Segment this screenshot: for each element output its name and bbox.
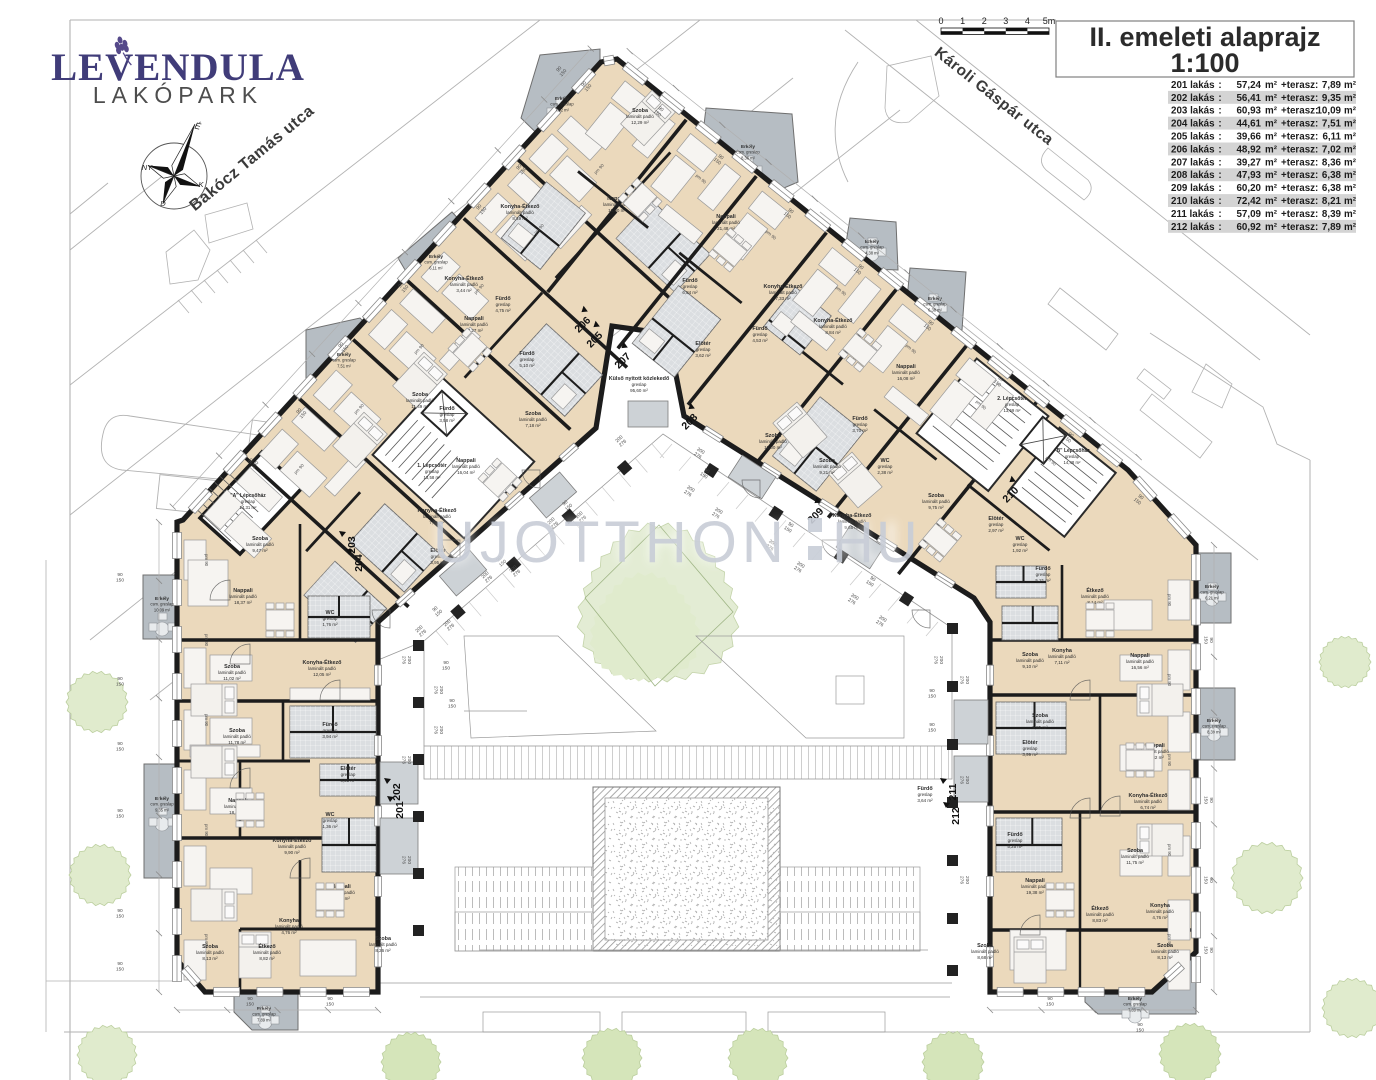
svg-text::: :: [1218, 106, 1221, 117]
svg-text:1: 1: [960, 16, 965, 26]
svg-text:47,93: 47,93: [1236, 170, 1261, 181]
svg-text:208 lakás: 208 lakás: [1171, 170, 1215, 181]
svg-text:LAKÓPARK: LAKÓPARK: [93, 82, 263, 108]
svg-text:13,58 m²: 13,58 m²: [424, 475, 442, 480]
svg-text:212 lakás: 212 lakás: [1171, 222, 1215, 233]
svg-text:m²: m²: [1344, 93, 1357, 104]
svg-text:pm 90: pm 90: [1167, 754, 1172, 767]
svg-text:5,10 m²: 5,10 m²: [519, 363, 535, 368]
svg-text:60,20: 60,20: [1236, 183, 1261, 194]
svg-text:m²: m²: [1344, 144, 1357, 155]
svg-text:+terasz:: +terasz:: [1281, 132, 1318, 143]
svg-text:12,05 m²: 12,05 m²: [313, 672, 331, 677]
svg-text:Fürdő: Fürdő: [917, 786, 933, 792]
svg-text:greslap: greslap: [1065, 454, 1080, 459]
svg-text:pm 90: pm 90: [204, 714, 209, 727]
svg-text:Nappali: Nappali: [716, 214, 736, 220]
svg-text:Konyha: Konyha: [1052, 648, 1073, 654]
svg-text:3,99 m²: 3,99 m²: [1022, 752, 1038, 757]
svg-text:csm. greslap: csm. greslap: [332, 358, 356, 363]
svg-text:150: 150: [246, 1002, 254, 1008]
svg-text:201 lakás: 201 lakás: [1171, 80, 1215, 91]
svg-text:m²: m²: [1344, 196, 1357, 207]
svg-text:150: 150: [116, 747, 124, 753]
svg-text:11,49 m²: 11,49 m²: [411, 404, 429, 409]
svg-text:7,18 m²: 7,18 m²: [525, 423, 541, 428]
svg-text:pm 90: pm 90: [1167, 934, 1172, 947]
svg-text:laminált padló: laminált padló: [229, 594, 257, 599]
svg-text:7,33 m²: 7,33 m²: [775, 296, 791, 301]
svg-text:Külső nyitott közlekedő: Külső nyitott közlekedő: [609, 376, 670, 382]
svg-text:m²: m²: [1344, 119, 1357, 130]
svg-text:m²: m²: [1265, 170, 1278, 181]
svg-text:Elötér: Elötér: [695, 341, 711, 347]
svg-text::: :: [1218, 132, 1221, 143]
svg-text:m²: m²: [1265, 106, 1278, 117]
svg-text:57,24: 57,24: [1236, 80, 1261, 91]
svg-text:greslap: greslap: [918, 792, 933, 797]
svg-text:greslap: greslap: [323, 728, 338, 733]
svg-text:150: 150: [1136, 1028, 1144, 1034]
svg-text:150: 150: [116, 914, 124, 920]
svg-text:pm 90: pm 90: [1167, 674, 1172, 687]
svg-text:laminált padló: laminált padló: [1021, 884, 1049, 889]
svg-text:200: 200: [964, 676, 970, 684]
svg-text:276: 276: [432, 686, 438, 694]
svg-text:16,04 m²: 16,04 m²: [457, 470, 475, 475]
svg-text:Konyha-Étkező: Konyha-Étkező: [501, 202, 541, 210]
svg-text:Nappali: Nappali: [233, 588, 253, 594]
svg-text:14,31 m²: 14,31 m²: [240, 505, 258, 510]
svg-text:39,66: 39,66: [1236, 132, 1261, 143]
svg-text:56,41: 56,41: [1236, 93, 1261, 104]
svg-text:Erkély: Erkély: [741, 144, 755, 149]
svg-text:Konyha-Étkező: Konyha-Étkező: [273, 836, 313, 844]
svg-text:200: 200: [406, 656, 412, 664]
svg-text:WC: WC: [326, 812, 335, 818]
svg-text:m²: m²: [1265, 93, 1278, 104]
svg-text:m²: m²: [1344, 106, 1357, 117]
svg-text:greslap: greslap: [496, 302, 511, 307]
svg-text:4,53 m²: 4,53 m²: [752, 338, 768, 343]
svg-text:6,51 m²: 6,51 m²: [340, 778, 356, 783]
svg-text:csm. greslap: csm. greslap: [150, 802, 174, 807]
svg-text:Szoba: Szoba: [1127, 848, 1144, 854]
svg-text:Szoba: Szoba: [224, 664, 241, 670]
svg-text:8,68 m²: 8,68 m²: [977, 955, 993, 960]
svg-text:laminált padló: laminált padló: [1026, 719, 1054, 724]
svg-text:greslap: greslap: [878, 464, 893, 469]
svg-text:6,38: 6,38: [1322, 170, 1342, 181]
svg-text:12,29 m²: 12,29 m²: [631, 120, 649, 125]
svg-text:150: 150: [116, 578, 124, 584]
svg-text:212: 212: [950, 807, 962, 825]
svg-text:laminált padló: laminált padló: [971, 949, 999, 954]
svg-text:8,49 m²: 8,49 m²: [512, 216, 528, 221]
svg-text:laminált padló: laminált padló: [1134, 799, 1162, 804]
svg-text:laminált padló: laminált padló: [712, 220, 740, 225]
svg-text:3,58 m²: 3,58 m²: [439, 418, 455, 423]
svg-text:+terasz:: +terasz:: [1281, 106, 1318, 117]
svg-text:1,36 m²: 1,36 m²: [322, 824, 338, 829]
svg-text:8,84 m²: 8,84 m²: [825, 330, 841, 335]
svg-text:16,08 m²: 16,08 m²: [897, 376, 915, 381]
svg-text:150: 150: [928, 728, 936, 734]
svg-text:+terasz:: +terasz:: [1281, 170, 1318, 181]
svg-text:Fürdő: Fürdő: [1007, 832, 1023, 838]
svg-text:9,85 m²: 9,85 m²: [1032, 725, 1048, 730]
svg-text:m²: m²: [1265, 157, 1278, 168]
svg-text::: :: [1218, 93, 1221, 104]
svg-text:D: D: [160, 199, 166, 208]
svg-text:200: 200: [406, 756, 412, 764]
svg-text:greslap: greslap: [440, 412, 455, 417]
svg-text:276: 276: [958, 776, 964, 784]
svg-text:90: 90: [327, 996, 333, 1002]
svg-text:9,35 m²: 9,35 m²: [155, 807, 170, 812]
svg-text:laminált padló: laminált padló: [759, 439, 787, 444]
svg-text:7,89: 7,89: [1322, 80, 1342, 91]
svg-text:laminált padló: laminált padló: [223, 734, 251, 739]
svg-text:Konyha-Étkező: Konyha-Étkező: [1129, 791, 1169, 799]
svg-text:m²: m²: [1265, 144, 1278, 155]
svg-text:Elötér: Elötér: [340, 766, 356, 772]
svg-text::: :: [1218, 170, 1221, 181]
svg-text:Elötér: Elötér: [988, 516, 1004, 522]
svg-text:7,89 m²: 7,89 m²: [257, 1017, 272, 1022]
svg-text:Erkély: Erkély: [1128, 996, 1142, 1001]
svg-text:+terasz:: +terasz:: [1281, 157, 1318, 168]
svg-text:greslap: greslap: [1013, 542, 1028, 547]
svg-text:6,38 m²: 6,38 m²: [928, 307, 943, 312]
svg-text:m²: m²: [1344, 132, 1357, 143]
svg-text:laminált padló: laminált padló: [506, 210, 534, 215]
svg-text:greslap: greslap: [323, 616, 338, 621]
svg-text:+terasz:: +terasz:: [1281, 144, 1318, 155]
svg-text:Konyha-Étkező: Konyha-Étkező: [303, 658, 343, 666]
svg-text:m²: m²: [1265, 222, 1278, 233]
svg-text:276: 276: [400, 856, 406, 864]
svg-text:laminált padló: laminált padló: [813, 464, 841, 469]
svg-text:57,09: 57,09: [1236, 209, 1261, 220]
svg-text:laminált padló: laminált padló: [450, 282, 478, 287]
svg-text:laminált padló: laminált padló: [452, 464, 480, 469]
svg-text:60,92: 60,92: [1236, 222, 1261, 233]
svg-text:Fürdő: Fürdő: [322, 722, 338, 728]
svg-text:4,75 m²: 4,75 m²: [495, 308, 511, 313]
svg-text:m²: m²: [1265, 80, 1278, 91]
svg-text::: :: [1218, 80, 1221, 91]
svg-text:2,97 m²: 2,97 m²: [988, 528, 1004, 533]
svg-text:8,26 m²: 8,26 m²: [375, 948, 391, 953]
svg-text:Konyha-Étkező: Konyha-Étkező: [445, 274, 485, 282]
svg-text:greslap: greslap: [1036, 572, 1051, 577]
svg-text:+terasz:: +terasz:: [1281, 80, 1318, 91]
svg-text:greslap: greslap: [696, 347, 711, 352]
svg-text:11,02 m²: 11,02 m²: [223, 676, 241, 681]
svg-text:11,78 m²: 11,78 m²: [228, 740, 246, 745]
svg-text:210 lakás: 210 lakás: [1171, 196, 1215, 207]
svg-text:Fürdő: Fürdő: [495, 296, 511, 302]
svg-text:205 lakás: 205 lakás: [1171, 132, 1215, 143]
svg-text:laminált padló: laminált padló: [1016, 658, 1044, 663]
svg-text:90: 90: [117, 961, 123, 967]
svg-text:200: 200: [438, 686, 444, 694]
svg-text:90: 90: [449, 698, 455, 704]
svg-text:207 lakás: 207 lakás: [1171, 157, 1215, 168]
svg-text:+terasz:: +terasz:: [1281, 222, 1318, 233]
svg-text:Étkező: Étkező: [1091, 904, 1109, 912]
svg-text:m²: m²: [1265, 196, 1278, 207]
svg-text:211: 211: [947, 783, 959, 800]
svg-text:Nappali: Nappali: [896, 364, 916, 370]
svg-text:greslap: greslap: [241, 499, 256, 504]
svg-text:90: 90: [1208, 637, 1214, 643]
svg-text:Étkező: Étkező: [1086, 586, 1104, 594]
svg-text:Fürdő: Fürdő: [1035, 566, 1051, 572]
svg-text:pm 90: pm 90: [204, 634, 209, 647]
svg-text:Szoba: Szoba: [525, 411, 542, 417]
svg-text:m²: m²: [1265, 209, 1278, 220]
svg-text:150: 150: [326, 1002, 334, 1008]
svg-text:laminált padló: laminált padló: [1146, 909, 1174, 914]
svg-text:200: 200: [406, 856, 412, 864]
svg-text:9,90 m²: 9,90 m²: [284, 850, 300, 855]
svg-text:m²: m²: [1344, 157, 1357, 168]
svg-text:11,75 m²: 11,75 m²: [1126, 860, 1144, 865]
svg-text:276: 276: [958, 876, 964, 884]
svg-text:150: 150: [116, 682, 124, 688]
svg-text:18,37 m²: 18,37 m²: [234, 600, 252, 605]
svg-text:90: 90: [1208, 947, 1214, 953]
svg-text:laminált padló: laminált padló: [308, 666, 336, 671]
svg-text:1,76 m²: 1,76 m²: [322, 622, 338, 627]
svg-text:3,94 m²: 3,94 m²: [322, 734, 338, 739]
svg-text:6,38: 6,38: [1322, 183, 1342, 194]
svg-text:8,83 m²: 8,83 m²: [1092, 918, 1108, 923]
svg-text:laminált padló: laminált padló: [626, 114, 654, 119]
svg-text:3,44 m²: 3,44 m²: [456, 288, 472, 293]
svg-text:+terasz:: +terasz:: [1281, 119, 1318, 130]
svg-text:Konyha: Konyha: [279, 918, 300, 924]
svg-text:NY: NY: [142, 163, 153, 172]
svg-text:Szoba: Szoba: [632, 108, 649, 114]
svg-text:laminált padló: laminált padló: [369, 942, 397, 947]
svg-text:Konyha: Konyha: [1150, 903, 1171, 909]
svg-text:211 lakás: 211 lakás: [1171, 209, 1215, 220]
svg-text:16,90 m²: 16,90 m²: [608, 208, 626, 213]
svg-text:csm. greslap: csm. greslap: [1202, 724, 1226, 729]
svg-text:greslap: greslap: [853, 422, 868, 427]
svg-text:90: 90: [929, 722, 935, 728]
svg-text:Fürdő: Fürdő: [682, 278, 698, 284]
svg-text:pm 90: pm 90: [204, 554, 209, 567]
svg-text:laminált padló: laminált padló: [819, 324, 847, 329]
svg-text:laminált padló: laminált padló: [519, 417, 547, 422]
svg-text:Szoba: Szoba: [765, 433, 782, 439]
svg-text:laminált padló: laminált padló: [253, 950, 281, 955]
svg-text:9,21 m²: 9,21 m²: [819, 470, 835, 475]
svg-text:laminált padló: laminált padló: [275, 924, 303, 929]
svg-text:Erkély: Erkély: [555, 96, 569, 101]
svg-text:204: 204: [353, 554, 365, 572]
svg-text:pm 90: pm 90: [204, 824, 209, 837]
svg-text:10,09 m²: 10,09 m²: [154, 607, 171, 612]
svg-text:72,42: 72,42: [1236, 196, 1261, 207]
svg-text:150: 150: [116, 814, 124, 820]
svg-text:laminált padló: laminált padló: [892, 370, 920, 375]
svg-text:202 lakás: 202 lakás: [1171, 93, 1215, 104]
svg-text:+terasz:: +terasz:: [1281, 196, 1318, 207]
svg-text:90: 90: [1137, 1022, 1143, 1028]
svg-text:7,51 m²: 7,51 m²: [337, 363, 352, 368]
svg-text:greslap: greslap: [1023, 746, 1038, 751]
svg-text:3,70 m²: 3,70 m²: [852, 428, 868, 433]
svg-text:csm. greslap: csm. greslap: [252, 1012, 276, 1017]
svg-text:greslap: greslap: [520, 357, 535, 362]
svg-text:m²: m²: [1344, 209, 1357, 220]
svg-text:laminált padló: laminált padló: [1121, 854, 1149, 859]
svg-text:WC: WC: [1016, 536, 1025, 542]
svg-text:90: 90: [117, 572, 123, 578]
svg-text:4,38 m²: 4,38 m²: [865, 250, 880, 255]
svg-text:7,51: 7,51: [1322, 119, 1342, 130]
svg-text:Nappali: Nappali: [456, 458, 476, 464]
svg-text:Fürdő: Fürdő: [519, 351, 535, 357]
svg-text:pm 90: pm 90: [204, 934, 209, 947]
svg-text:10,09: 10,09: [1316, 106, 1341, 117]
svg-text:greslap: greslap: [1008, 838, 1023, 843]
svg-text:150: 150: [1046, 1002, 1054, 1008]
svg-text:6,74 m²: 6,74 m²: [1140, 805, 1156, 810]
svg-text:276: 276: [432, 726, 438, 734]
svg-text:2,38 m²: 2,38 m²: [877, 470, 893, 475]
svg-text:Szoba: Szoba: [977, 943, 994, 949]
svg-text:Szoba: Szoba: [1032, 713, 1049, 719]
svg-text::: :: [1218, 157, 1221, 168]
svg-text:4,76 m²: 4,76 m²: [1152, 915, 1168, 920]
svg-text:3: 3: [1003, 16, 1008, 26]
svg-text:6,84 m²: 6,84 m²: [682, 290, 698, 295]
svg-text:8,82 m²: 8,82 m²: [259, 956, 275, 961]
svg-text:276: 276: [958, 676, 964, 684]
svg-text:Szoba: Szoba: [252, 536, 269, 542]
svg-text:Fürdő: Fürdő: [752, 326, 768, 332]
svg-text:44,61: 44,61: [1236, 119, 1261, 130]
svg-text:4: 4: [1025, 16, 1030, 26]
svg-text:Szoba: Szoba: [229, 728, 246, 734]
svg-text:Elötér: Elötér: [1022, 740, 1038, 746]
svg-text:16,56 m²: 16,56 m²: [1131, 665, 1149, 670]
svg-text:Szoba: Szoba: [375, 936, 392, 942]
svg-text:m²: m²: [1265, 119, 1278, 130]
svg-text:276: 276: [400, 656, 406, 664]
svg-text::: :: [1218, 222, 1221, 233]
svg-text:150: 150: [448, 704, 456, 710]
svg-text:150: 150: [1202, 796, 1208, 804]
svg-text:150: 150: [1202, 946, 1208, 954]
svg-text:3,62 m²: 3,62 m²: [695, 353, 711, 358]
svg-text:150: 150: [116, 967, 124, 973]
svg-text:9,10 m²: 9,10 m²: [1022, 664, 1038, 669]
svg-text:10,00 m²: 10,00 m²: [764, 445, 782, 450]
svg-text:90: 90: [1047, 996, 1053, 1002]
svg-text:pm 90: pm 90: [1167, 594, 1172, 607]
svg-text:m²: m²: [1265, 183, 1278, 194]
svg-text:203 lakás: 203 lakás: [1171, 106, 1215, 117]
svg-text::: :: [1218, 119, 1221, 130]
svg-text:laminált padló: laminált padló: [769, 290, 797, 295]
svg-text:Étkező: Étkező: [258, 942, 276, 950]
svg-text:m²: m²: [1265, 132, 1278, 143]
svg-text:greslap: greslap: [753, 332, 768, 337]
svg-text:0: 0: [938, 16, 943, 26]
svg-text:m²: m²: [1344, 170, 1357, 181]
svg-text:laminált padló: laminált padló: [218, 670, 246, 675]
svg-text:14,48 m²: 14,48 m²: [1064, 460, 1082, 465]
svg-text:UJOTTHON: UJOTTHON: [433, 510, 789, 575]
svg-text:4,76 m²: 4,76 m²: [281, 930, 297, 935]
svg-text:laminált padló: laminált padló: [1126, 659, 1154, 664]
svg-text:laminált padló: laminált padló: [1081, 594, 1109, 599]
svg-text:HU: HU: [832, 510, 920, 575]
svg-text:csm. greslap: csm. greslap: [1200, 590, 1224, 595]
svg-text:Konyha-Étkező: Konyha-Étkező: [814, 316, 854, 324]
svg-text:csm. greslap: csm. greslap: [1123, 1002, 1147, 1007]
svg-text:200: 200: [438, 726, 444, 734]
svg-text:150: 150: [928, 694, 936, 700]
svg-text::: :: [1218, 196, 1221, 207]
svg-text:Szoba: Szoba: [928, 493, 945, 499]
svg-text:csm. greslap: csm. greslap: [550, 102, 574, 107]
svg-text:laminált padló: laminált padló: [1086, 912, 1114, 917]
svg-text:greslap: greslap: [989, 522, 1004, 527]
svg-text:1:100: 1:100: [1170, 48, 1239, 78]
svg-text:90: 90: [247, 996, 253, 1002]
svg-text:Fürdő: Fürdő: [852, 416, 868, 422]
svg-text:90: 90: [929, 688, 935, 694]
svg-text:5,21 m²: 5,21 m²: [1035, 578, 1051, 583]
svg-text:Erkély: Erkély: [155, 596, 169, 601]
svg-text:6,11 m²: 6,11 m²: [429, 265, 443, 270]
svg-text:Konyha-Étkező: Konyha-Étkező: [764, 282, 804, 290]
svg-text:csm. greslap: csm. greslap: [424, 260, 448, 265]
svg-text:150: 150: [442, 666, 450, 672]
svg-text:8,21: 8,21: [1322, 196, 1342, 207]
svg-text:laminált padló: laminált padló: [406, 398, 434, 403]
svg-text:3,64 m²: 3,64 m²: [917, 798, 933, 803]
svg-text:Nappali: Nappali: [1025, 878, 1045, 884]
svg-text:laminált padló: laminált padló: [1151, 949, 1179, 954]
svg-text:2: 2: [982, 16, 987, 26]
svg-text:150: 150: [1202, 636, 1208, 644]
svg-text:8,13 m²: 8,13 m²: [202, 956, 218, 961]
svg-text:Erkély: Erkély: [155, 796, 169, 801]
svg-text:5m: 5m: [1043, 16, 1056, 26]
svg-text:csm. greslap: csm. greslap: [923, 302, 947, 307]
svg-text:90: 90: [1208, 877, 1214, 883]
svg-text:95,60 m²: 95,60 m²: [630, 388, 648, 393]
svg-text:39,27: 39,27: [1236, 157, 1261, 168]
svg-text:90: 90: [443, 660, 449, 666]
svg-text:5,25 m²: 5,25 m²: [1007, 844, 1023, 849]
svg-text:+terasz:: +terasz:: [1281, 93, 1318, 104]
svg-text:204 lakás: 204 lakás: [1171, 119, 1215, 130]
svg-text:8,36: 8,36: [1322, 157, 1342, 168]
svg-text:206 lakás: 206 lakás: [1171, 144, 1215, 155]
svg-text:90: 90: [117, 676, 123, 682]
svg-text:19,38 m²: 19,38 m²: [1026, 890, 1044, 895]
